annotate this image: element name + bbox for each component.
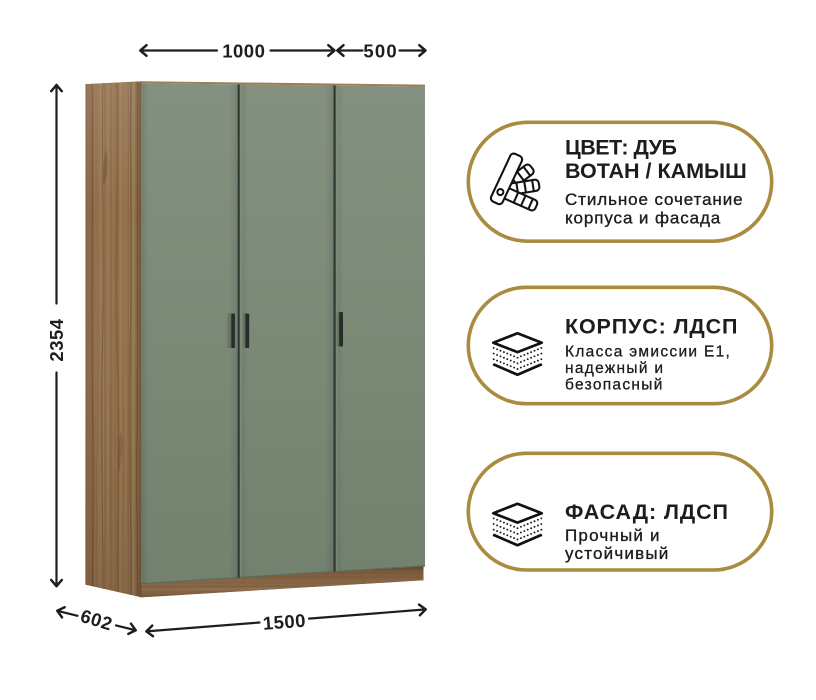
svg-text:безопасный: безопасный <box>565 376 664 393</box>
svg-text:500: 500 <box>363 41 397 62</box>
svg-text:Класса эмиссии Е1,: Класса эмиссии Е1, <box>565 343 731 360</box>
svg-text:Прочный и: Прочный и <box>565 526 661 545</box>
svg-text:корпуса и фасада: корпуса и фасада <box>565 209 721 228</box>
svg-text:КОРПУС: ЛДСП: КОРПУС: ЛДСП <box>565 314 738 338</box>
svg-text:ВОТАН / КАМЫШ: ВОТАН / КАМЫШ <box>565 159 747 183</box>
svg-text:2354: 2354 <box>46 318 67 361</box>
svg-text:1500: 1500 <box>262 610 307 634</box>
svg-text:ФАСАД: ЛДСП: ФАСАД: ЛДСП <box>565 500 729 524</box>
svg-text:1000: 1000 <box>222 41 265 62</box>
svg-text:устойчивый: устойчивый <box>565 544 669 563</box>
svg-text:ЦВЕТ: ДУБ: ЦВЕТ: ДУБ <box>565 136 677 160</box>
svg-text:Стильное сочетание: Стильное сочетание <box>565 190 743 209</box>
svg-text:602: 602 <box>78 605 115 635</box>
svg-text:надежный и: надежный и <box>565 360 664 377</box>
